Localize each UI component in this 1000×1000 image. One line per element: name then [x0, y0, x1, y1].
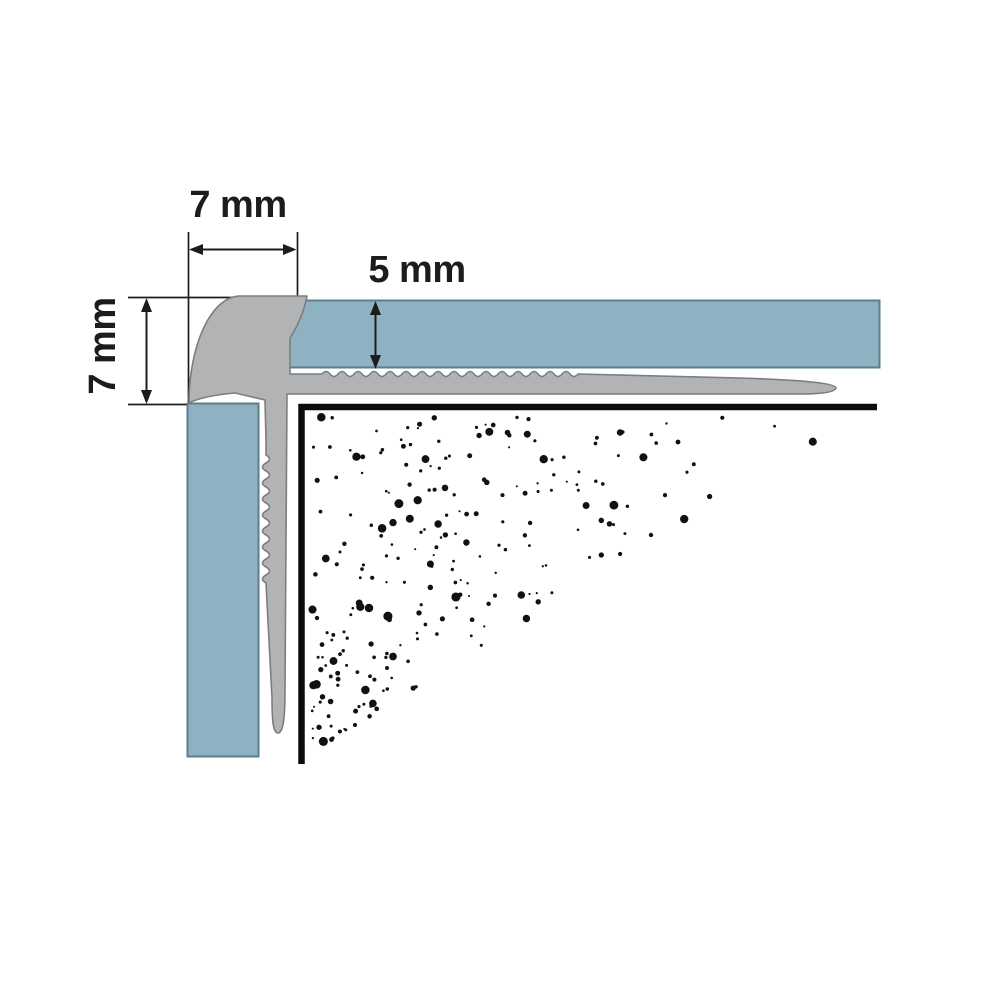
stipple-dot: [467, 453, 472, 458]
stipple-dot: [342, 542, 346, 546]
stipple-dot: [458, 592, 463, 597]
stipple-dot: [483, 625, 485, 627]
stipple-dot: [317, 656, 320, 659]
stipple-dot: [419, 469, 422, 472]
stipple-dot: [626, 505, 629, 508]
stipple-dot: [445, 514, 448, 517]
stipple-dot: [315, 616, 319, 620]
stipple-dot: [566, 481, 568, 483]
stipple-dot: [533, 439, 536, 442]
stipple-dot: [452, 560, 455, 563]
stipple-dot: [404, 463, 408, 467]
stipple-dot: [433, 488, 437, 492]
stipple-dot: [639, 453, 647, 461]
stipple-dot: [528, 521, 532, 525]
stipple-dot: [338, 652, 342, 656]
stipple-dot: [374, 706, 379, 711]
stipple-dot: [476, 433, 481, 438]
stipple-dot: [329, 674, 333, 678]
stipple-dot: [372, 655, 376, 659]
stipple-dot: [536, 599, 541, 604]
stipple-dot: [500, 493, 504, 497]
stipple-dot: [427, 560, 434, 567]
stipple-dot: [575, 483, 578, 486]
stipple-dot: [809, 438, 817, 446]
stipple-dot: [577, 529, 580, 532]
diagram-canvas: 7 mm 7 mm 5 mm: [0, 0, 1000, 1000]
stipple-dot: [423, 528, 426, 531]
stipple-dot: [451, 568, 454, 571]
stipple-dot: [355, 455, 359, 459]
stipple-dot: [427, 488, 430, 491]
stipple-dot: [432, 415, 437, 420]
stipple-dot: [320, 642, 325, 647]
stipple-dot: [437, 440, 440, 443]
stipple-dot: [388, 492, 390, 494]
stipple-dot: [470, 617, 475, 622]
stipple-dot: [443, 532, 448, 537]
stipple-dot: [594, 480, 597, 483]
arrow-right-icon: [283, 244, 297, 255]
stipple-dot: [312, 446, 315, 449]
stipple-dot: [409, 443, 412, 446]
stipple-dot: [327, 714, 331, 718]
stipple-dot: [454, 532, 457, 535]
stipple-dot: [455, 606, 458, 609]
stipple-dot: [508, 446, 510, 448]
stipple-dot: [482, 477, 487, 482]
stipple-dot: [516, 485, 518, 487]
stipple-dot: [331, 736, 334, 739]
stipple-dot: [493, 594, 497, 598]
stipple-dot: [353, 723, 357, 727]
stipple-dot: [319, 701, 322, 704]
stipple-dot: [435, 632, 439, 636]
substrate-stipple: [308, 413, 816, 746]
stipple-dot: [607, 521, 613, 527]
stipple-dot: [463, 539, 469, 545]
stipple-dot: [523, 491, 528, 496]
stipple-dot: [406, 426, 409, 429]
stipple-dot: [552, 473, 555, 476]
stipple-dot: [353, 709, 358, 714]
stipple-dot: [550, 591, 553, 594]
stipple-dot: [685, 471, 688, 474]
stipple-dot: [422, 455, 430, 463]
stipple-dot: [414, 548, 416, 550]
stipple-dot: [336, 684, 339, 687]
stipple-dot: [453, 493, 456, 496]
stipple-dot: [528, 593, 530, 595]
stipple-dot: [417, 422, 422, 427]
stipple-dot: [612, 523, 615, 526]
stipple-dot: [313, 572, 318, 577]
stipple-dot: [390, 677, 393, 680]
stipple-dot: [357, 705, 360, 708]
stipple-dot: [485, 428, 493, 436]
stipple-dot: [485, 424, 487, 426]
stipple-dot: [319, 740, 322, 743]
stipple-dot: [468, 595, 470, 597]
stipple-dot: [385, 652, 389, 656]
stipple-dot: [466, 582, 469, 585]
stipple-dot: [311, 710, 314, 713]
stipple-dot: [720, 416, 724, 420]
stipple-dot: [491, 423, 496, 428]
stipple-dot: [365, 604, 373, 612]
dimension-riser-height: 7 mm: [82, 297, 152, 404]
stipple-dot: [440, 536, 443, 539]
stipple-dot: [369, 700, 377, 708]
stipple-dot: [601, 482, 605, 486]
stipple-dot: [497, 544, 500, 547]
stipple-dot: [583, 502, 590, 509]
stipple-dot: [545, 564, 548, 567]
stipple-dot: [352, 607, 355, 610]
stipple-dot: [349, 449, 352, 452]
stipple-dot: [360, 454, 365, 459]
stipple-dot: [320, 694, 325, 699]
stipple-dot: [389, 519, 396, 526]
arrow-up-icon: [141, 298, 152, 312]
stipple-dot: [692, 462, 696, 466]
stipple-dot: [403, 581, 406, 584]
stipple-dot: [326, 631, 329, 634]
stipple-dot: [416, 632, 419, 635]
stipple-dot: [319, 726, 321, 728]
stipple-dot: [330, 657, 338, 665]
stipple-dot: [362, 703, 365, 706]
stipple-dot: [440, 616, 445, 621]
stipple-dot: [536, 592, 538, 594]
stipple-dot: [474, 511, 479, 516]
stipple-dot: [420, 603, 423, 606]
stipple-dot: [379, 451, 382, 454]
stipple-dot: [368, 641, 373, 646]
stipple-dot: [317, 413, 325, 421]
stipple-dot: [335, 562, 339, 566]
stipple-dot: [343, 630, 346, 633]
stipple-dot: [528, 544, 531, 547]
stipple-dot: [328, 699, 334, 705]
stipple-dot: [406, 659, 410, 663]
stipple-dot: [330, 416, 334, 420]
stipple-dot: [312, 680, 321, 689]
stipple-dot: [470, 634, 473, 637]
stipple-dot: [362, 563, 365, 566]
stipple-dot: [464, 512, 469, 517]
stipple-dot: [385, 581, 387, 583]
stipple-dot: [346, 637, 349, 640]
stipple-dot: [330, 725, 333, 728]
stipple-dot: [599, 518, 604, 523]
stipple-dot: [475, 426, 478, 429]
stipple-dot: [588, 556, 591, 559]
stipple-dot: [416, 637, 419, 640]
stipple-dot: [459, 510, 461, 512]
stipple-dot: [595, 436, 599, 440]
profile-cross-section-diagram: 7 mm 7 mm 5 mm: [0, 0, 1000, 1000]
dimension-label-riser-height: 7 mm: [82, 297, 124, 394]
stipple-dot: [407, 482, 411, 486]
stipple-dot: [324, 664, 327, 667]
stipple-dot: [504, 548, 508, 552]
stipple-dot: [486, 602, 490, 606]
stipple-dot: [387, 617, 392, 622]
stipple-dot: [379, 534, 383, 538]
stipple-dot: [542, 565, 544, 567]
stipple-dot: [523, 615, 530, 622]
dimension-label-top-width: 7 mm: [189, 184, 286, 226]
stipple-dot: [424, 623, 428, 627]
riser-tile: [188, 404, 259, 757]
stipple-dot: [359, 576, 362, 579]
stipple-dot: [319, 510, 323, 514]
stipple-dot: [321, 656, 324, 659]
stipple-dot: [680, 515, 688, 523]
stipple-dot: [385, 554, 388, 557]
arrow-down-icon: [141, 390, 152, 404]
stipple-dot: [400, 438, 403, 441]
stipple-dot: [356, 670, 360, 674]
substrate-edge-line: [302, 407, 878, 764]
stipple-dot: [434, 545, 438, 549]
stipple-dot: [419, 531, 422, 534]
stipple-dot: [448, 454, 451, 457]
stipple-dot: [515, 416, 518, 419]
stipple-dot: [315, 478, 320, 483]
stipple-dot: [338, 729, 342, 733]
stipple-dot: [343, 728, 345, 730]
stipple-dot: [523, 533, 527, 537]
stipple-dot: [773, 425, 776, 428]
stipple-dot: [394, 499, 403, 508]
stipple-dot: [433, 554, 435, 556]
stipple-dot: [460, 579, 462, 581]
stipple-dot: [480, 644, 483, 647]
stipple-dot: [537, 490, 540, 493]
stipple-dot: [417, 427, 419, 429]
stipple-dot: [370, 523, 374, 527]
stipple-dot: [434, 520, 441, 527]
stipple-dot: [562, 455, 565, 458]
stipple-dot: [396, 557, 399, 560]
stipple-dot: [442, 485, 449, 492]
stipple-dot: [390, 654, 393, 657]
dimension-top-width: 7 mm: [189, 184, 297, 255]
stipple-dot: [367, 714, 372, 719]
stipple-dot: [617, 454, 620, 457]
stipple-dot: [345, 664, 348, 667]
stipple-dot: [401, 444, 406, 449]
stipple-dot: [707, 494, 712, 499]
stipple-dot: [414, 496, 422, 504]
stipple-dot: [438, 467, 441, 470]
stipple-dot: [507, 433, 511, 437]
stipple-dot: [313, 706, 315, 708]
stipple-dot: [594, 442, 598, 446]
stipple-dot: [406, 515, 414, 523]
stipple-dot: [361, 686, 370, 695]
stipple-dot: [356, 603, 364, 611]
stipple-dot: [599, 552, 604, 557]
stipple-dot: [623, 532, 626, 535]
stipple-dot: [342, 649, 345, 652]
dimension-label-tile-thickness: 5 mm: [368, 249, 465, 291]
stipple-dot: [428, 585, 433, 590]
stipple-dot: [610, 501, 619, 510]
stipple-dot: [577, 470, 580, 473]
stipple-dot: [617, 429, 624, 436]
stipple-dot: [312, 737, 314, 739]
stipple-dot: [649, 533, 653, 537]
stipple-dot: [411, 685, 416, 690]
stipple-dot: [391, 543, 394, 546]
stipple-dot: [339, 551, 342, 554]
stipple-dot: [536, 482, 538, 484]
stipple-dot: [385, 490, 388, 493]
stipple-dot: [444, 457, 447, 460]
stipple-dot: [618, 552, 622, 556]
stipple-dot: [494, 572, 496, 574]
stipple-dot: [382, 689, 385, 692]
stipple-dot: [551, 458, 554, 461]
stipple-dot: [336, 677, 341, 682]
stipple-dot: [312, 728, 314, 730]
stipple-dot: [577, 489, 580, 492]
stipple-dot: [524, 431, 531, 438]
stipple-dot: [526, 417, 530, 421]
stipple-dot: [399, 644, 401, 646]
stipple-dot: [368, 674, 372, 678]
stipple-dot: [330, 639, 333, 642]
stipple-dot: [349, 613, 352, 616]
stipple-dot: [328, 445, 332, 449]
stipple-dot: [381, 448, 385, 452]
stipple-dot: [349, 513, 352, 516]
stipple-dot: [360, 567, 364, 571]
arrow-left-icon: [189, 244, 203, 255]
stipple-dot: [650, 433, 654, 437]
stipple-dot: [318, 667, 323, 672]
stipple-dot: [386, 687, 390, 691]
stipple-dot: [384, 656, 387, 659]
stipple-dot: [479, 555, 482, 558]
stipple-dot: [416, 610, 421, 615]
stipple-dot: [375, 430, 378, 433]
stipple-dot: [335, 671, 340, 676]
stipple-dot: [518, 591, 526, 599]
stipple-dot: [501, 520, 504, 523]
stipple-dot: [385, 666, 389, 670]
stipple-dot: [676, 440, 681, 445]
stipple-dot: [429, 465, 431, 467]
stipple-dot: [372, 678, 376, 682]
stipple-dot: [550, 489, 553, 492]
stipple-dot: [654, 441, 658, 445]
stipple-dot: [331, 633, 335, 637]
stipple-dot: [663, 493, 667, 497]
stipple-dot: [322, 555, 330, 563]
stipple-dot: [454, 581, 458, 585]
stipple-dot: [665, 422, 667, 424]
stipple-dot: [334, 475, 338, 479]
stipple-dot: [540, 455, 548, 463]
stipple-dot: [311, 609, 314, 612]
stipple-dot: [378, 524, 387, 533]
stipple-dot: [361, 472, 363, 474]
stipple-dot: [370, 576, 374, 580]
